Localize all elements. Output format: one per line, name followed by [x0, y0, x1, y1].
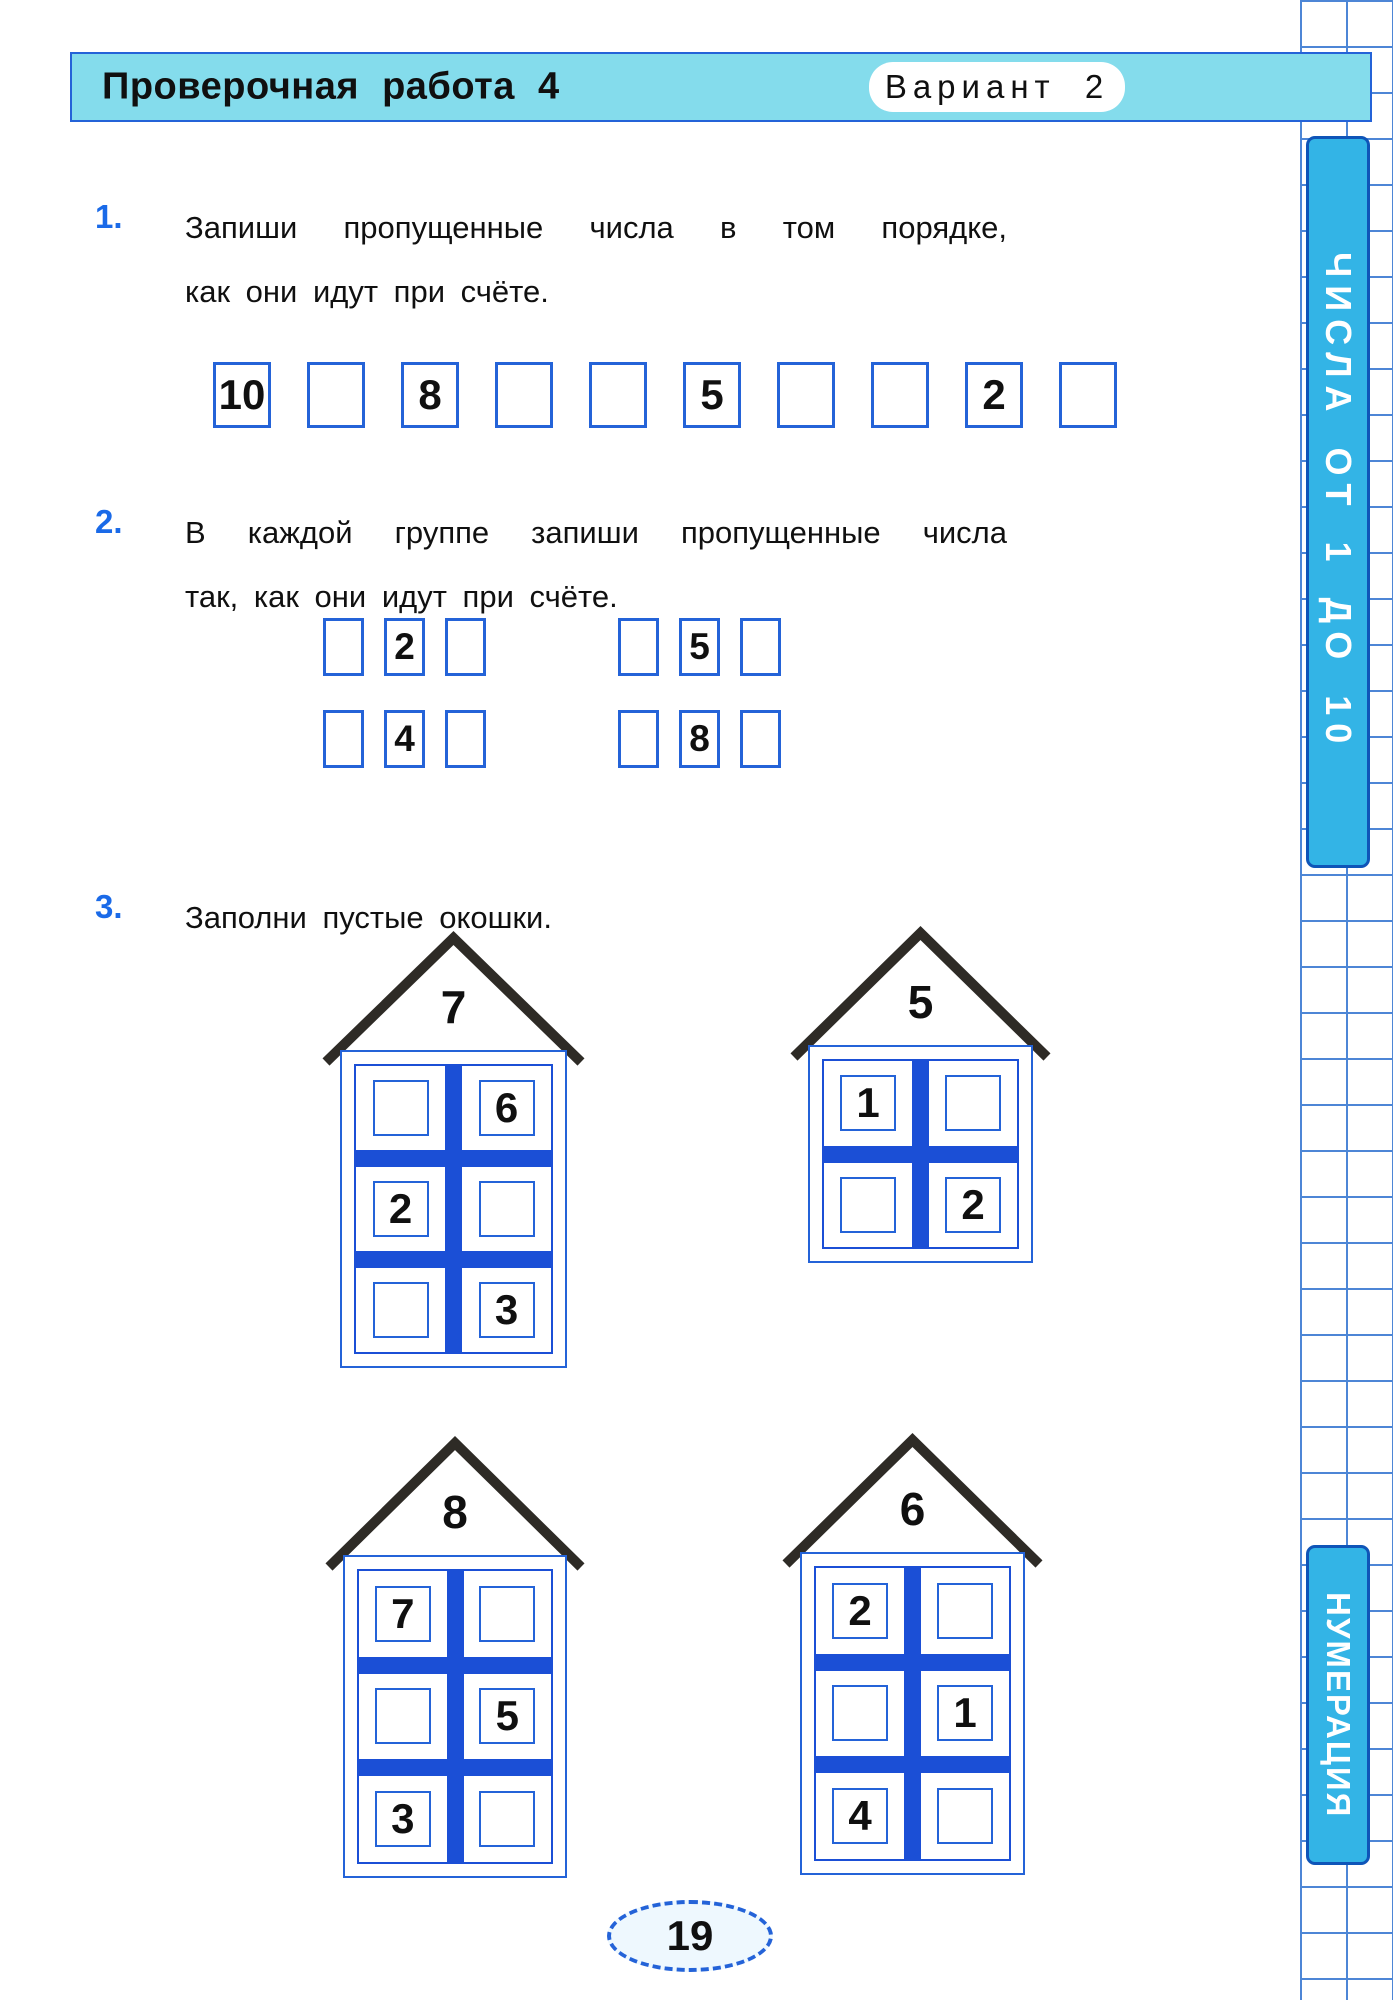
house-window-empty — [937, 1788, 993, 1844]
house-window-filled: 1 — [937, 1685, 993, 1741]
house-window-filled: 2 — [945, 1177, 1001, 1233]
house-cell — [927, 1059, 1019, 1148]
house-cell: 1 — [919, 1669, 1011, 1759]
task-2-line-1: В каждой группе запиши пропущенные числа — [185, 501, 1007, 565]
house-window-empty — [373, 1282, 429, 1338]
house-cell — [822, 1161, 914, 1250]
task-2-number: 2. — [95, 503, 155, 541]
house-window-empty — [479, 1791, 535, 1847]
sequence-box-filled: 10 — [213, 362, 271, 428]
sidebar-label-section: НУМЕРАЦИЯ — [1306, 1545, 1370, 1865]
house: 7623 — [318, 928, 589, 1376]
sequence-box-empty — [589, 362, 647, 428]
house-cell — [919, 1566, 1011, 1656]
roof-number: 7 — [318, 980, 589, 1034]
task-1-text: Запиши пропущенные числа в том порядке, … — [185, 196, 1007, 324]
house-window-empty — [840, 1177, 896, 1233]
sequence-box-filled: 2 — [965, 362, 1023, 428]
house-window-empty — [937, 1583, 993, 1639]
sequence-box-empty — [495, 362, 553, 428]
house-grid: 12 — [822, 1059, 1019, 1249]
house-window-filled: 2 — [373, 1181, 429, 1237]
roof-number: 5 — [786, 975, 1055, 1029]
house-window-empty — [832, 1685, 888, 1741]
house-cell: 3 — [357, 1774, 449, 1864]
sequence-box-empty — [777, 362, 835, 428]
house-window-filled: 4 — [832, 1788, 888, 1844]
house-cell — [462, 1569, 554, 1659]
house-cell — [814, 1669, 906, 1759]
group-box-empty — [445, 710, 486, 768]
group-box-empty — [618, 710, 659, 768]
group-box-empty — [323, 618, 364, 676]
house-cell — [354, 1064, 447, 1152]
house-window-filled: 3 — [479, 1282, 535, 1338]
sequence-box-filled: 5 — [683, 362, 741, 428]
page-number-badge: 19 — [607, 1900, 773, 1972]
sequence-box-filled: 8 — [401, 362, 459, 428]
house-window-empty — [375, 1688, 431, 1744]
house-window-empty — [479, 1586, 535, 1642]
task-1-line-2: как они идут при счёте. — [185, 260, 1007, 324]
task-1-line-1: Запиши пропущенные числа в том порядке, — [185, 196, 1007, 260]
roof-number: 8 — [321, 1485, 589, 1539]
house-grid: 623 — [354, 1064, 553, 1354]
house-window-filled: 6 — [479, 1080, 535, 1136]
group-box-filled: 4 — [384, 710, 425, 768]
house-cell: 2 — [354, 1165, 447, 1253]
house-cell: 6 — [460, 1064, 553, 1152]
house-window-empty — [945, 1075, 1001, 1131]
group-box-empty — [740, 618, 781, 676]
task-2-line-2: так, как они идут при счёте. — [185, 565, 1007, 629]
house: 6214 — [778, 1430, 1047, 1883]
house: 8753 — [321, 1433, 589, 1886]
group-box-filled: 5 — [679, 618, 720, 676]
house-cell — [462, 1774, 554, 1864]
group-box-empty — [618, 618, 659, 676]
house-window-filled: 7 — [375, 1586, 431, 1642]
house-body: 12 — [808, 1045, 1033, 1263]
sequence-box-empty — [871, 362, 929, 428]
header-bar: Проверочная работа 4 Вариант 2 — [70, 52, 1372, 122]
sequence-box-empty — [307, 362, 365, 428]
house-cell: 4 — [814, 1771, 906, 1861]
house-cell — [357, 1672, 449, 1762]
number-group: 24 — [323, 618, 486, 768]
variant-badge: Вариант 2 — [869, 62, 1125, 112]
house-window-filled: 5 — [479, 1688, 535, 1744]
group-box-filled: 8 — [679, 710, 720, 768]
sequence-box-empty — [1059, 362, 1117, 428]
house-body: 753 — [343, 1555, 567, 1878]
house: 512 — [786, 923, 1055, 1271]
group-box-empty — [445, 618, 486, 676]
house-cell: 3 — [460, 1266, 553, 1354]
house-cell: 5 — [462, 1672, 554, 1762]
page-title: Проверочная работа 4 — [102, 66, 560, 109]
house-window-filled: 1 — [840, 1075, 896, 1131]
house-window-filled: 3 — [375, 1791, 431, 1847]
sidebar-label-topic: ЧИСЛА ОТ 1 ДО 10 — [1306, 136, 1370, 868]
house-cell: 2 — [927, 1161, 1019, 1250]
house-body: 214 — [800, 1552, 1025, 1875]
house-body: 623 — [340, 1050, 567, 1368]
group-box-empty — [740, 710, 781, 768]
house-cell — [919, 1771, 1011, 1861]
group-box-filled: 2 — [384, 618, 425, 676]
roof-number: 6 — [778, 1482, 1047, 1536]
task-1-number: 1. — [95, 198, 155, 236]
house-grid: 753 — [357, 1569, 553, 1864]
task-2-text: В каждой группе запиши пропущенные числа… — [185, 501, 1007, 629]
house-window-empty — [479, 1181, 535, 1237]
house-cell — [460, 1165, 553, 1253]
worksheet-page: Проверочная работа 4 Вариант 2 ЧИСЛА ОТ … — [0, 0, 1393, 2000]
group-box-empty — [323, 710, 364, 768]
house-window-empty — [373, 1080, 429, 1136]
house-window-filled: 2 — [832, 1583, 888, 1639]
house-grid: 214 — [814, 1566, 1011, 1861]
house-cell: 2 — [814, 1566, 906, 1656]
house-cell: 7 — [357, 1569, 449, 1659]
task-3-number: 3. — [95, 888, 155, 926]
house-cell: 1 — [822, 1059, 914, 1148]
sequence-row: 10852 — [213, 362, 1117, 428]
house-cell — [354, 1266, 447, 1354]
number-group: 58 — [618, 618, 781, 768]
